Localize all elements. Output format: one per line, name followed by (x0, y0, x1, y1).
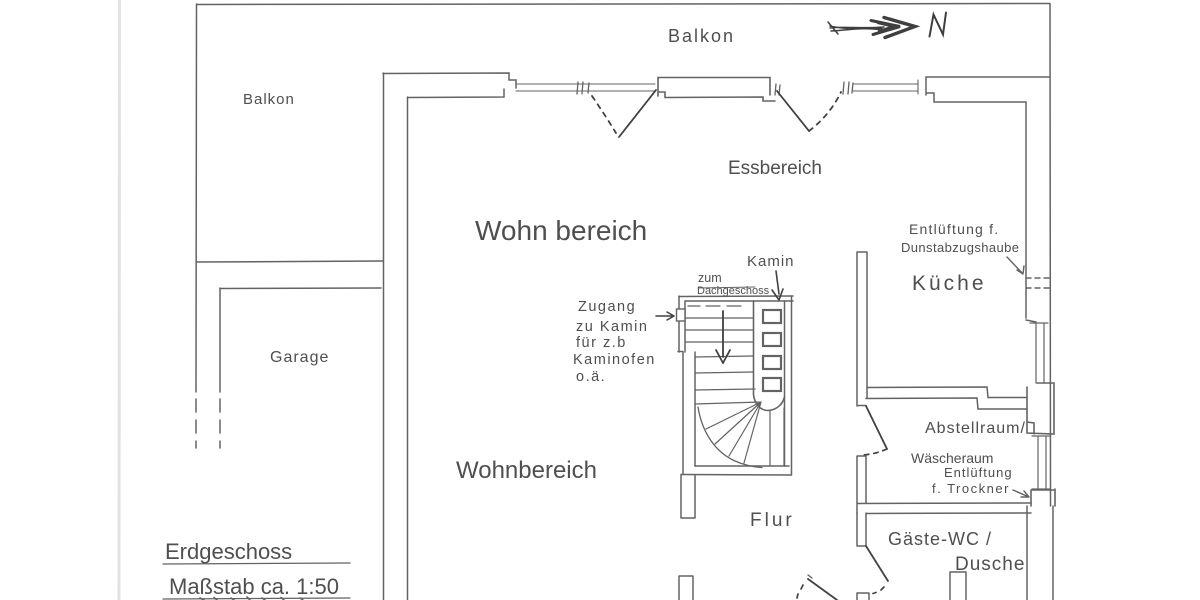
svg-text:Wohnbereich: Wohnbereich (456, 457, 597, 484)
svg-text:Essbereich: Essbereich (728, 158, 822, 179)
svg-text:Wäscheraum: Wäscheraum (911, 450, 993, 466)
svg-text:zum: zum (698, 271, 722, 285)
svg-text:f. Trockner: f. Trockner (932, 481, 1010, 496)
svg-text:Entlüftung f.: Entlüftung f. (909, 221, 999, 237)
svg-text:Dunstabzugshaube: Dunstabzugshaube (901, 240, 1019, 255)
svg-text:Garage: Garage (270, 349, 329, 366)
svg-text:Balkon: Balkon (668, 26, 735, 46)
svg-text:Erdgeschoss: Erdgeschoss (165, 539, 292, 564)
svg-text:zu Kamin: zu Kamin (576, 319, 648, 335)
svg-text:Flur: Flur (750, 510, 795, 531)
svg-text:für z.b: für z.b (576, 335, 627, 351)
svg-text:Abstellraum/: Abstellraum/ (925, 420, 1026, 437)
svg-text:Entlüftung: Entlüftung (944, 465, 1013, 480)
svg-text:Balkon: Balkon (243, 91, 295, 108)
svg-text:Küche: Küche (912, 272, 987, 295)
svg-text:Wohn bereich: Wohn bereich (475, 215, 647, 246)
svg-text:Dachgeschoss: Dachgeschoss (697, 285, 770, 297)
svg-text:Maßstab ca. 1:50: Maßstab ca. 1:50 (169, 574, 339, 599)
svg-text:o.ä.: o.ä. (576, 369, 606, 385)
svg-text:Kaminofen: Kaminofen (573, 352, 656, 368)
svg-text:Zugang: Zugang (578, 299, 636, 315)
svg-text:Gäste-WC /: Gäste-WC / (888, 529, 992, 549)
svg-text:Kamin: Kamin (747, 253, 795, 270)
